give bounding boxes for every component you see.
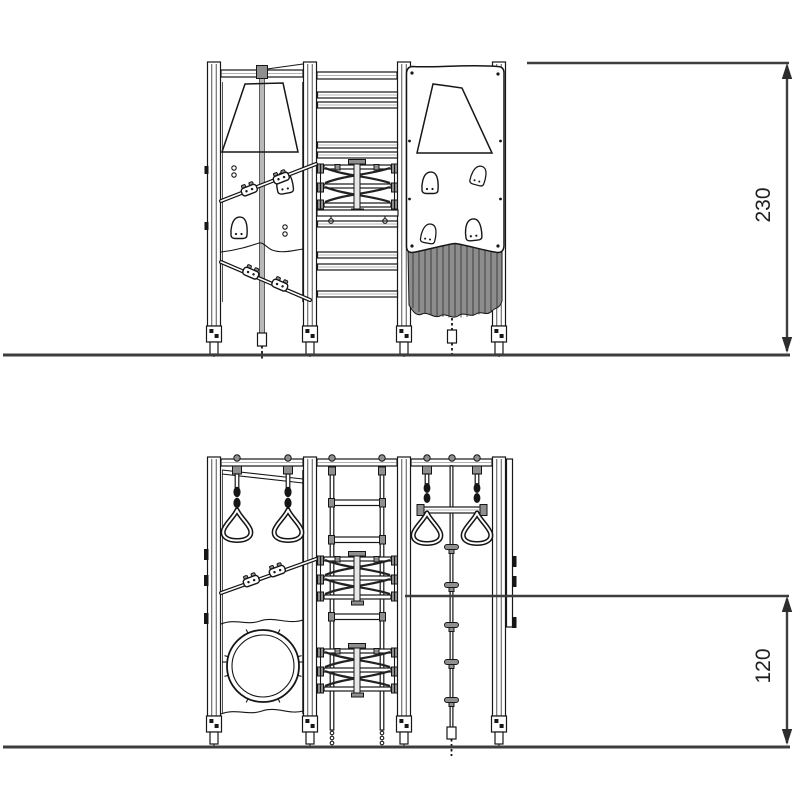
rope-tensioner: [447, 727, 456, 739]
height-dimension-230: 230: [527, 63, 792, 353]
dimension-arrow: [782, 729, 792, 745]
height-dimension-120: 120: [405, 596, 792, 745]
dimension-arrow: [782, 337, 792, 353]
panel-seam: [221, 619, 303, 624]
climbing-rope-lower: [221, 262, 310, 300]
dimension-arrow: [782, 596, 792, 612]
post: [303, 62, 318, 357]
trapeze-ring: [473, 466, 482, 503]
ladder-rung: [329, 613, 386, 622]
trapeze-ring-handle: [463, 513, 491, 544]
support-pole: [260, 68, 265, 333]
ladder-rung: [329, 499, 386, 508]
left-bay: [221, 466, 316, 714]
playground-technical-drawing: 230: [0, 0, 800, 800]
pole-clamp: [257, 66, 268, 79]
tunnel-opening: [222, 630, 303, 703]
pole-tensioner: [448, 330, 457, 343]
climbing-wall-panel-left: [221, 64, 316, 302]
trapeze-ring-handle: [413, 513, 441, 544]
post: [492, 457, 507, 748]
pole-tensioner: [258, 333, 267, 346]
dimension-label: 120: [752, 648, 775, 683]
climbing-rope: [221, 559, 316, 593]
ladder-rung: [329, 536, 386, 545]
dimension-label: 230: [752, 187, 775, 222]
climbing-wall-panel-right: [407, 66, 505, 253]
trapeze-ring: [274, 466, 302, 541]
rope-ladder: [318, 467, 398, 745]
post: [207, 62, 222, 357]
ladder-section: [317, 72, 398, 297]
drawing-canvas: 230: [0, 0, 800, 800]
front-elevation-view: [3, 62, 790, 359]
side-elevation-view: [3, 455, 790, 756]
side-panel-edge: [507, 459, 513, 627]
climbing-hold: [231, 217, 247, 238]
post: [397, 457, 412, 748]
post: [207, 457, 222, 748]
post: [303, 457, 318, 748]
top-beam: [221, 455, 492, 466]
climbing-hold: [422, 172, 438, 193]
right-bay: [413, 466, 491, 756]
net-bridge-upper: [318, 552, 398, 606]
net-bridge: [318, 160, 398, 214]
net-bridge-lower: [318, 644, 398, 698]
rope-curtain: [408, 244, 502, 359]
dimension-arrow: [782, 63, 792, 79]
trapeze-ring: [423, 466, 432, 503]
panel-seam: [221, 709, 303, 714]
